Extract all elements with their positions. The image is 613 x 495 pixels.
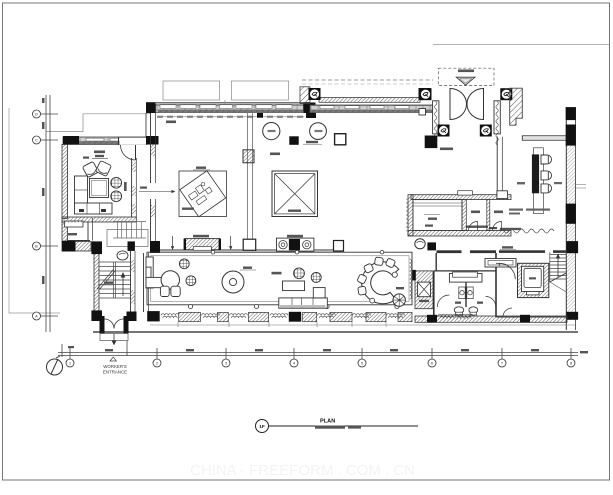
svg-text:CHINA - FREEFORM . COM . CN: CHINA - FREEFORM . COM . CN (190, 462, 415, 479)
svg-text:7: 7 (501, 361, 503, 365)
svg-text:ENTRANCE: ENTRANCE (103, 370, 127, 375)
svg-text:6: 6 (431, 361, 433, 365)
svg-text:PLAN: PLAN (320, 419, 335, 425)
svg-text:4: 4 (293, 361, 295, 365)
svg-text:1F: 1F (259, 424, 265, 430)
svg-text:5: 5 (361, 361, 363, 365)
svg-text:8: 8 (570, 361, 572, 365)
svg-text:3: 3 (225, 361, 227, 365)
svg-text:C: C (35, 138, 38, 142)
svg-text:2: 2 (156, 361, 158, 365)
svg-text:D: D (35, 112, 38, 116)
svg-text:WORKER'S: WORKER'S (103, 364, 127, 369)
svg-text:1: 1 (69, 361, 71, 365)
